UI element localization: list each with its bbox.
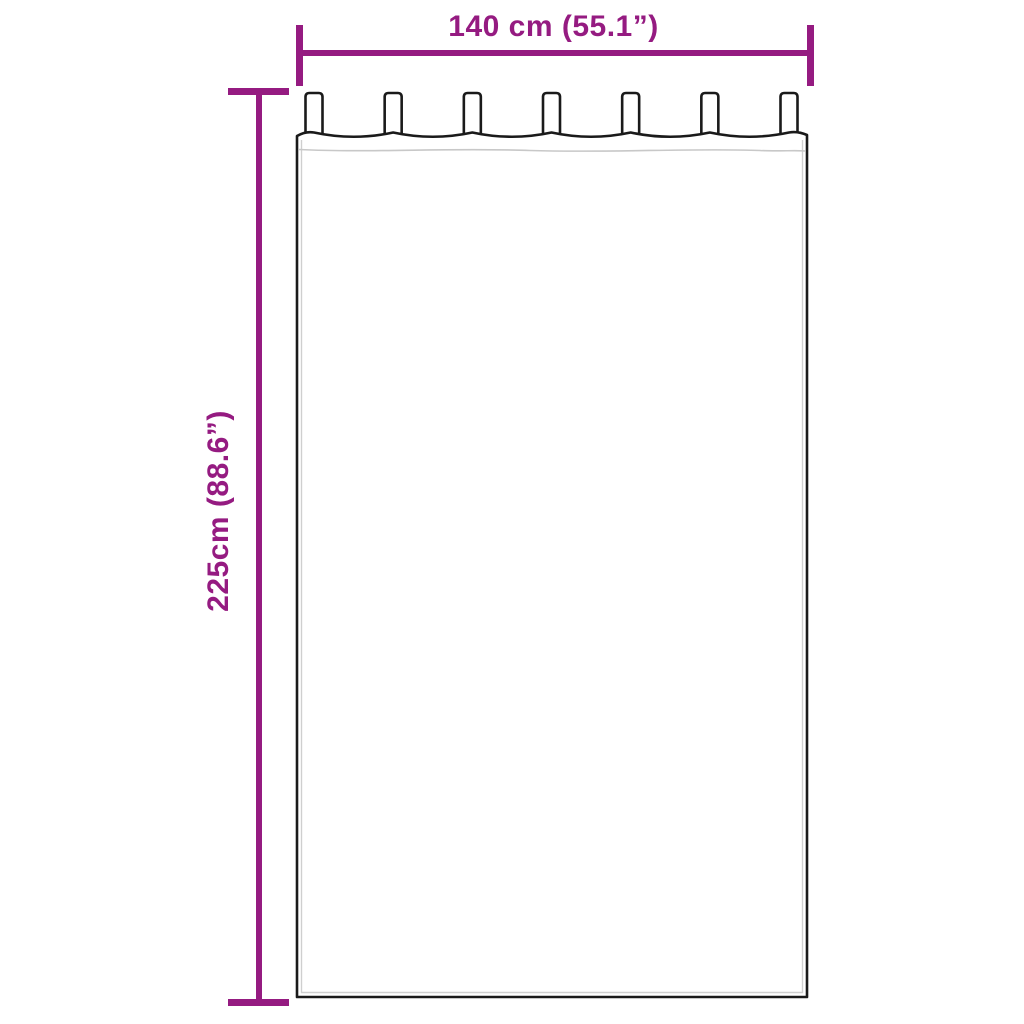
width-dimension-right-cap bbox=[807, 25, 814, 86]
dimension-diagram-canvas: 140 cm (55.1”) 225cm (88.6”) bbox=[0, 0, 1024, 1024]
curtain-illustration bbox=[0, 0, 1024, 1024]
height-dimension-bottom-cap bbox=[228, 999, 289, 1006]
height-dimension-label: 225cm (88.6”) bbox=[202, 410, 236, 612]
height-dimension-line bbox=[256, 90, 262, 1003]
height-dimension-top-cap bbox=[228, 88, 289, 95]
width-dimension-left-cap bbox=[296, 25, 303, 86]
width-dimension-label: 140 cm (55.1”) bbox=[297, 7, 810, 47]
width-dimension-line bbox=[297, 50, 810, 56]
curtain-body bbox=[297, 132, 807, 997]
